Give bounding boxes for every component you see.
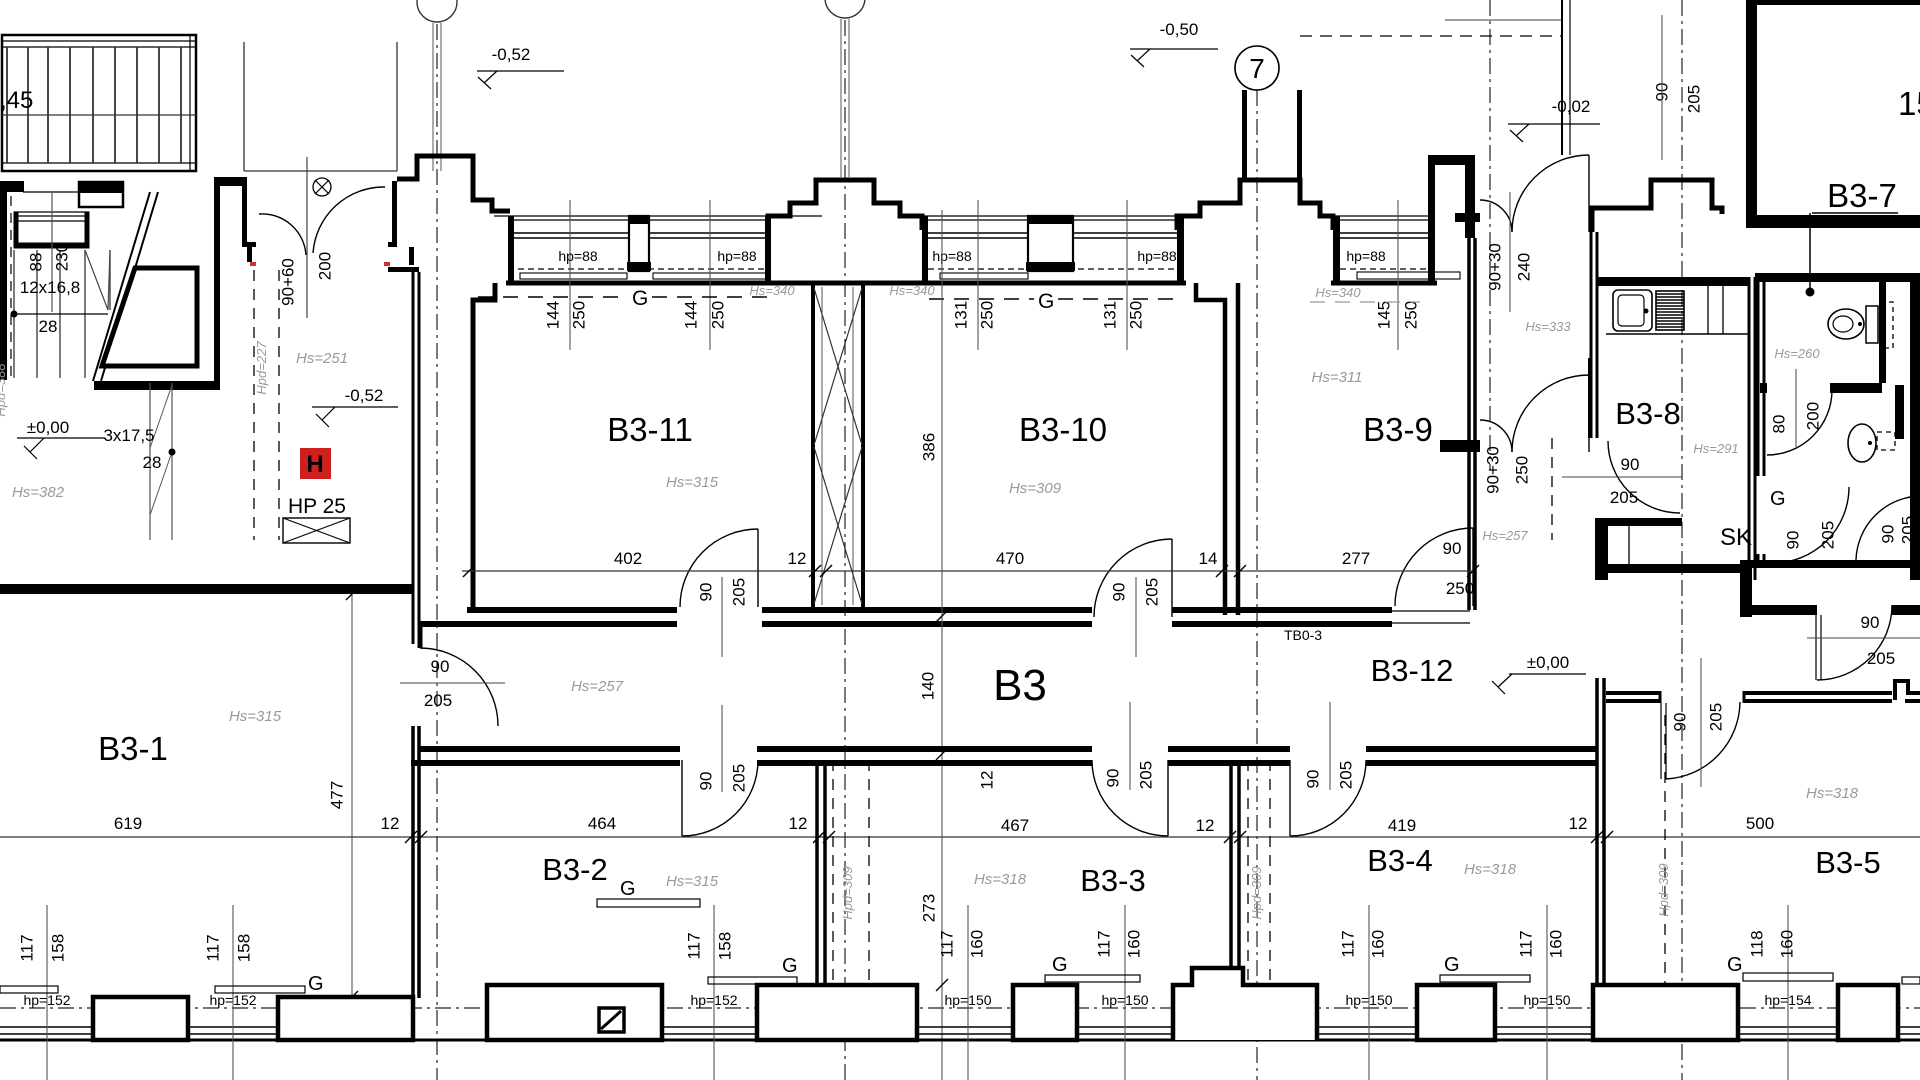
- svg-text:250: 250: [977, 301, 996, 329]
- svg-text:Hs=340: Hs=340: [749, 283, 795, 298]
- svg-text:619: 619: [114, 814, 142, 833]
- svg-text:hp=88: hp=88: [558, 248, 598, 264]
- svg-text:117: 117: [1094, 930, 1113, 957]
- svg-text:205: 205: [424, 691, 452, 710]
- svg-text:B3-1: B3-1: [98, 730, 168, 767]
- svg-text:117: 117: [17, 934, 36, 961]
- svg-text:14: 14: [1199, 549, 1218, 568]
- svg-text:B3-4: B3-4: [1367, 843, 1432, 878]
- svg-text:250: 250: [569, 301, 588, 329]
- svg-text:12: 12: [381, 814, 400, 833]
- svg-text:G: G: [1444, 954, 1460, 976]
- svg-text:250: 250: [1126, 301, 1145, 329]
- svg-text:160: 160: [1124, 930, 1143, 958]
- svg-text:Hs=382: Hs=382: [12, 484, 65, 501]
- svg-text:HP 25: HP 25: [288, 495, 346, 518]
- svg-text:205: 205: [729, 764, 748, 792]
- svg-text:Hs=333: Hs=333: [1525, 319, 1571, 334]
- svg-text:hp=88: hp=88: [932, 248, 972, 264]
- svg-text:Hpd=227: Hpd=227: [254, 341, 269, 395]
- svg-text:144: 144: [681, 301, 700, 329]
- svg-text:G: G: [1052, 954, 1068, 976]
- svg-text:B3-12: B3-12: [1371, 653, 1454, 688]
- svg-text:28: 28: [39, 317, 58, 336]
- svg-text:Hpd=309: Hpd=309: [1249, 866, 1264, 919]
- svg-text:80: 80: [1769, 415, 1788, 434]
- svg-text:B3-11: B3-11: [607, 411, 693, 448]
- svg-text:117: 117: [937, 930, 956, 957]
- svg-text:Hs=257: Hs=257: [571, 678, 624, 695]
- svg-text:-0,50: -0,50: [1160, 20, 1199, 39]
- svg-text:158: 158: [715, 932, 734, 960]
- svg-text:90: 90: [1443, 539, 1462, 558]
- svg-text:G: G: [620, 878, 636, 900]
- svg-text:G: G: [632, 287, 648, 310]
- svg-text:470: 470: [996, 549, 1024, 568]
- svg-text:118: 118: [1747, 930, 1766, 957]
- svg-text:90: 90: [1303, 770, 1322, 789]
- svg-text:B3: B3: [993, 661, 1047, 710]
- svg-text:-0,02: -0,02: [1552, 97, 1591, 116]
- svg-text:-0,52: -0,52: [492, 45, 531, 64]
- svg-text:90+30: 90+30: [1485, 243, 1504, 291]
- svg-text:12: 12: [789, 814, 808, 833]
- svg-text:hp=88: hp=88: [1137, 248, 1177, 264]
- svg-text:205: 205: [729, 578, 748, 606]
- svg-text:Hs=315: Hs=315: [666, 873, 719, 890]
- svg-text:131: 131: [1100, 301, 1119, 329]
- svg-text:Hpd=388: Hpd=388: [0, 363, 8, 417]
- svg-text:,45: ,45: [0, 87, 33, 114]
- svg-text:419: 419: [1388, 816, 1416, 835]
- svg-text:B3-9: B3-9: [1363, 411, 1433, 448]
- svg-text:117: 117: [684, 932, 703, 959]
- svg-text:SK: SK: [1720, 524, 1752, 551]
- svg-text:160: 160: [1777, 930, 1796, 958]
- svg-text:117: 117: [1516, 930, 1535, 957]
- svg-text:±0,00: ±0,00: [1527, 653, 1569, 672]
- svg-text:Hs=340: Hs=340: [889, 283, 935, 298]
- svg-text:B3-5: B3-5: [1815, 845, 1880, 880]
- svg-text:250: 250: [1446, 579, 1474, 598]
- svg-text:12: 12: [788, 549, 807, 568]
- svg-text:Hs=318: Hs=318: [1806, 785, 1859, 802]
- svg-text:158: 158: [234, 934, 253, 962]
- svg-text:Hs=318: Hs=318: [974, 871, 1027, 888]
- svg-text:TB0-3: TB0-3: [1284, 627, 1322, 643]
- svg-text:Hs=251: Hs=251: [296, 350, 348, 367]
- svg-text:160: 160: [1546, 930, 1565, 958]
- svg-text:240: 240: [1514, 253, 1533, 281]
- svg-text:386: 386: [919, 433, 938, 461]
- svg-text:467: 467: [1001, 816, 1029, 835]
- svg-text:205: 205: [1136, 761, 1155, 789]
- svg-text:90: 90: [1670, 713, 1689, 732]
- svg-text:205: 205: [1706, 703, 1725, 731]
- svg-text:B3-10: B3-10: [1019, 411, 1107, 448]
- svg-text:90: 90: [1621, 455, 1640, 474]
- svg-text:H: H: [306, 451, 323, 478]
- svg-text:28: 28: [143, 453, 162, 472]
- svg-text:7: 7: [1249, 53, 1265, 84]
- svg-text:117: 117: [203, 934, 222, 961]
- svg-text:90: 90: [1861, 613, 1880, 632]
- svg-text:131: 131: [951, 301, 970, 329]
- svg-text:500: 500: [1746, 814, 1774, 833]
- svg-text:140: 140: [918, 672, 937, 700]
- svg-text:117: 117: [1338, 930, 1357, 957]
- svg-text:205: 205: [1336, 761, 1355, 789]
- svg-text:90: 90: [1783, 531, 1802, 550]
- svg-text:158: 158: [48, 934, 67, 962]
- svg-text:200: 200: [1803, 402, 1822, 430]
- svg-text:230: 230: [52, 243, 71, 271]
- svg-text:-0,52: -0,52: [345, 386, 384, 405]
- svg-text:Hs=309: Hs=309: [1009, 480, 1062, 497]
- svg-text:250: 250: [1512, 456, 1531, 484]
- svg-text:12x16,8: 12x16,8: [20, 278, 81, 297]
- svg-text:90: 90: [696, 583, 715, 602]
- svg-text:90: 90: [1109, 583, 1128, 602]
- svg-text:G: G: [308, 973, 324, 995]
- svg-text:273: 273: [919, 894, 938, 922]
- svg-text:B3-8: B3-8: [1615, 396, 1680, 431]
- svg-text:200: 200: [315, 252, 334, 280]
- svg-text:90: 90: [431, 657, 450, 676]
- svg-text:15: 15: [1898, 85, 1920, 122]
- svg-text:B3-2: B3-2: [542, 852, 607, 887]
- svg-text:145: 145: [1374, 301, 1393, 329]
- svg-text:90: 90: [1103, 769, 1122, 788]
- svg-text:205: 205: [1610, 488, 1638, 507]
- svg-text:90: 90: [1878, 525, 1897, 544]
- svg-text:90+30: 90+30: [1483, 446, 1502, 494]
- svg-text:Hs=257: Hs=257: [1482, 528, 1528, 543]
- svg-text:Hpd=309: Hpd=309: [840, 866, 855, 919]
- svg-text:Hs=311: Hs=311: [1311, 369, 1362, 386]
- svg-text:12: 12: [1569, 814, 1588, 833]
- svg-text:160: 160: [967, 930, 986, 958]
- svg-text:Hs=315: Hs=315: [666, 474, 719, 491]
- svg-text:402: 402: [614, 549, 642, 568]
- svg-text:205: 205: [1898, 516, 1917, 544]
- svg-text:90+60: 90+60: [278, 258, 297, 306]
- svg-text:Hs=318: Hs=318: [1464, 861, 1517, 878]
- svg-text:205: 205: [1867, 649, 1895, 668]
- svg-text:250: 250: [708, 301, 727, 329]
- svg-text:250: 250: [1401, 301, 1420, 329]
- svg-text:±0,00: ±0,00: [27, 418, 69, 437]
- svg-text:G: G: [1770, 488, 1786, 510]
- svg-text:477: 477: [327, 781, 346, 809]
- svg-text:160: 160: [1368, 930, 1387, 958]
- svg-text:205: 205: [1142, 578, 1161, 606]
- svg-text:G: G: [1038, 290, 1054, 313]
- svg-text:12: 12: [1196, 816, 1215, 835]
- svg-text:B3-7: B3-7: [1827, 177, 1897, 214]
- svg-text:3x17,5: 3x17,5: [103, 426, 154, 445]
- svg-text:hp=88: hp=88: [717, 248, 757, 264]
- svg-text:88: 88: [26, 253, 45, 272]
- svg-text:12: 12: [977, 771, 996, 790]
- svg-text:205: 205: [1818, 521, 1837, 549]
- svg-text:90: 90: [696, 772, 715, 791]
- svg-text:277: 277: [1342, 549, 1370, 568]
- svg-text:B3-3: B3-3: [1080, 863, 1145, 898]
- svg-text:G: G: [1727, 954, 1743, 976]
- svg-text:205: 205: [1684, 85, 1703, 113]
- svg-text:Hpd=309: Hpd=309: [1656, 863, 1671, 916]
- svg-text:hp=88: hp=88: [1346, 248, 1386, 264]
- svg-text:464: 464: [588, 814, 616, 833]
- svg-text:G: G: [782, 955, 798, 977]
- svg-text:Hs=291: Hs=291: [1693, 441, 1738, 456]
- svg-text:Hs=340: Hs=340: [1315, 285, 1361, 300]
- svg-text:144: 144: [543, 301, 562, 329]
- svg-text:Hs=315: Hs=315: [229, 708, 282, 725]
- svg-text:Hs=260: Hs=260: [1774, 346, 1820, 361]
